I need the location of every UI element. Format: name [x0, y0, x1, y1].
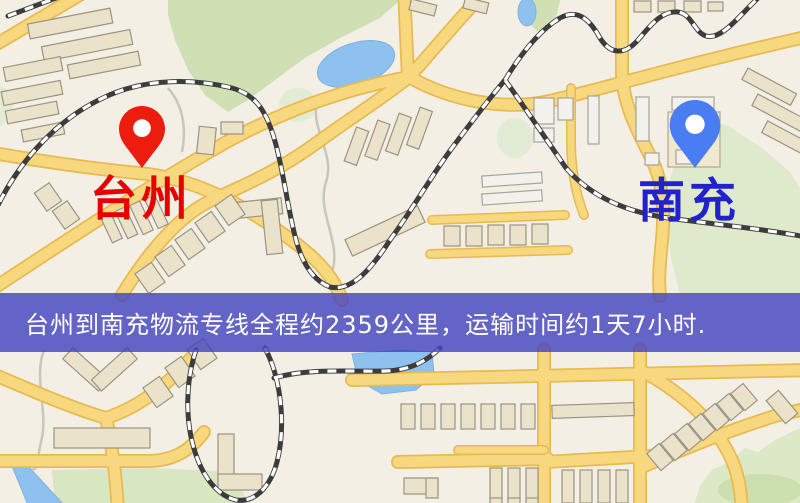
destination-city-label: 南充	[638, 178, 740, 225]
map-screenshot: 台州 南充 台州到南充物流专线全程约2359公里，运输时间约1天7小时.	[0, 0, 800, 503]
origin-city-label: 台州	[90, 176, 192, 223]
map-canvas	[0, 0, 800, 503]
origin-pin-icon	[119, 102, 165, 172]
route-info-banner: 台州到南充物流专线全程约2359公里，运输时间约1天7小时.	[0, 293, 800, 352]
route-info-text: 台州到南充物流专线全程约2359公里，运输时间约1天7小时.	[25, 305, 706, 340]
destination-pin-icon	[668, 100, 722, 168]
